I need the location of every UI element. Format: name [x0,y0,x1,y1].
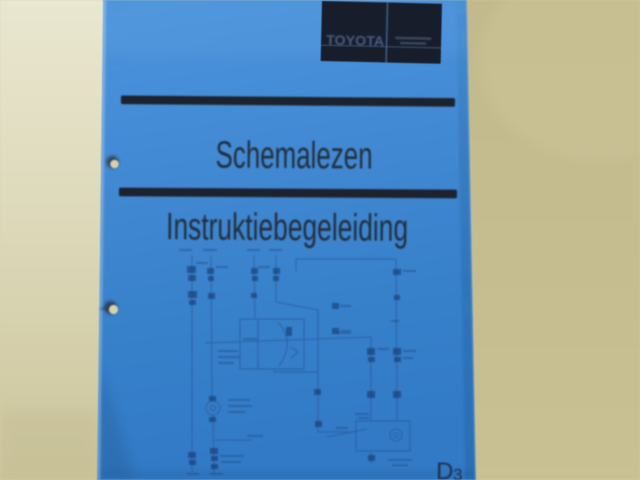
svg-text:D: D [436,458,454,480]
svg-text:3: 3 [453,465,463,480]
svg-text:Schemalezen: Schemalezen [215,134,372,177]
svg-text:Instruktiebegeleiding: Instruktiebegeleiding [166,206,408,250]
svg-text:TOYOTA: TOYOTA [326,33,385,49]
